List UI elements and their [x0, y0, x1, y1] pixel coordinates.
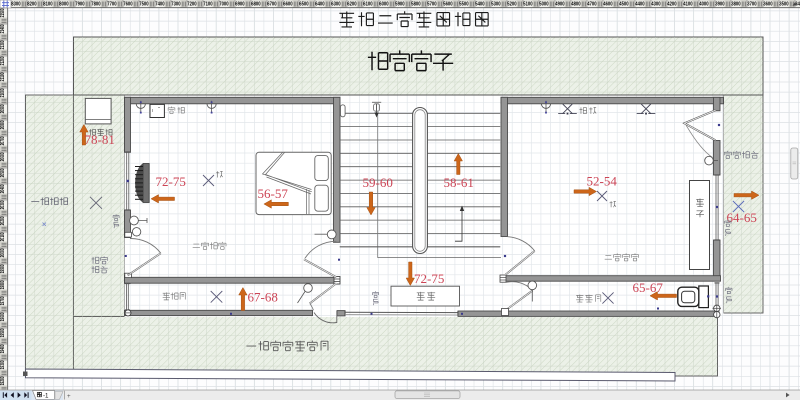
- svg-text:4900: 4900: [555, 1, 564, 7]
- svg-text:4700: 4700: [587, 1, 596, 7]
- svg-text:72-75: 72-75: [414, 271, 444, 286]
- svg-text:19600: 19600: [0, 312, 6, 321]
- svg-text:7400: 7400: [155, 1, 164, 7]
- svg-text:7500: 7500: [139, 1, 148, 7]
- svg-text:5100: 5100: [523, 1, 532, 7]
- svg-text:4300: 4300: [651, 1, 660, 7]
- svg-text:20100: 20100: [0, 232, 6, 241]
- svg-text:+: +: [67, 393, 71, 400]
- svg-text:6500: 6500: [299, 1, 308, 7]
- svg-text:6900: 6900: [235, 1, 244, 7]
- svg-text:4500: 4500: [619, 1, 628, 7]
- svg-text:20800: 20800: [0, 120, 6, 129]
- svg-text:7600: 7600: [123, 1, 132, 7]
- svg-text:78-81: 78-81: [85, 132, 115, 147]
- svg-text:19200: 19200: [0, 376, 6, 385]
- svg-text:19500: 19500: [0, 328, 6, 337]
- svg-text:21100: 21100: [0, 72, 6, 81]
- svg-text:20700: 20700: [0, 136, 6, 145]
- svg-text:5400: 5400: [475, 1, 484, 7]
- svg-text:5600: 5600: [443, 1, 452, 7]
- svg-text:21300: 21300: [0, 40, 6, 49]
- svg-text:7700: 7700: [107, 1, 116, 7]
- svg-text:19300: 19300: [0, 360, 6, 369]
- svg-text:59-60: 59-60: [363, 175, 393, 190]
- svg-text:52-54: 52-54: [587, 174, 618, 189]
- svg-text:8100: 8100: [43, 1, 52, 7]
- svg-text:8300: 8300: [11, 1, 20, 7]
- svg-text:3800: 3800: [731, 1, 740, 7]
- svg-text:6200: 6200: [347, 1, 356, 7]
- svg-text:21400: 21400: [0, 24, 6, 33]
- svg-text:-1: -1: [43, 393, 49, 400]
- svg-text:5300: 5300: [491, 1, 500, 7]
- svg-text:6000: 6000: [379, 1, 388, 7]
- svg-text:21000: 21000: [0, 88, 6, 97]
- svg-text:20200: 20200: [0, 216, 6, 225]
- svg-text:21500: 21500: [0, 8, 6, 17]
- svg-text:20500: 20500: [0, 168, 6, 177]
- svg-text:21200: 21200: [0, 56, 6, 65]
- svg-text:20600: 20600: [0, 152, 6, 161]
- svg-text:5000: 5000: [539, 1, 548, 7]
- svg-text:6400: 6400: [315, 1, 324, 7]
- svg-text:7000: 7000: [219, 1, 228, 7]
- svg-text:3900: 3900: [715, 1, 724, 7]
- svg-text:58-61: 58-61: [444, 175, 474, 190]
- svg-text:20300: 20300: [0, 200, 6, 209]
- svg-text:20400: 20400: [0, 184, 6, 193]
- svg-text:5800: 5800: [411, 1, 420, 7]
- svg-text:20000: 20000: [0, 248, 6, 257]
- svg-text:7200: 7200: [187, 1, 196, 7]
- svg-text:8000: 8000: [59, 1, 68, 7]
- svg-text:5900: 5900: [395, 1, 404, 7]
- svg-text:4600: 4600: [603, 1, 612, 7]
- svg-text:7300: 7300: [171, 1, 180, 7]
- svg-text:19900: 19900: [0, 264, 6, 273]
- svg-text:6300: 6300: [331, 1, 340, 7]
- svg-text:7100: 7100: [203, 1, 212, 7]
- svg-text:6700: 6700: [267, 1, 276, 7]
- svg-text:7800: 7800: [91, 1, 100, 7]
- svg-text:20900: 20900: [0, 104, 6, 113]
- svg-text:7900: 7900: [75, 1, 84, 7]
- svg-text:4400: 4400: [635, 1, 644, 7]
- svg-text:6800: 6800: [251, 1, 260, 7]
- svg-text:5700: 5700: [427, 1, 436, 7]
- svg-text:19400: 19400: [0, 344, 6, 353]
- svg-text:4100: 4100: [683, 1, 692, 7]
- svg-text:8200: 8200: [27, 1, 36, 7]
- svg-text:19700: 19700: [0, 296, 6, 305]
- svg-text:5500: 5500: [459, 1, 468, 7]
- svg-text:3600: 3600: [763, 1, 772, 7]
- svg-text:4800: 4800: [571, 1, 580, 7]
- svg-text:19800: 19800: [0, 280, 6, 289]
- svg-text:3700: 3700: [747, 1, 756, 7]
- svg-text:6100: 6100: [363, 1, 372, 7]
- svg-text:56-57: 56-57: [258, 186, 289, 201]
- svg-text:6600: 6600: [283, 1, 292, 7]
- svg-text:4000: 4000: [699, 1, 708, 7]
- svg-text:67-68: 67-68: [248, 289, 278, 304]
- svg-text:3500: 3500: [779, 1, 788, 7]
- svg-text:65-67: 65-67: [633, 280, 664, 295]
- svg-text:4200: 4200: [667, 1, 676, 7]
- svg-text:72-75: 72-75: [156, 174, 186, 189]
- svg-text:5200: 5200: [507, 1, 516, 7]
